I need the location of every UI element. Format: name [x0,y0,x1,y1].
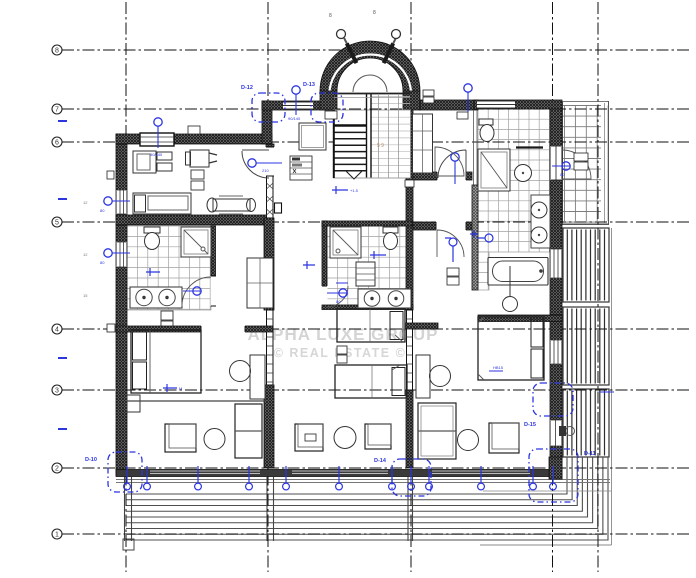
svg-text:8: 8 [329,13,332,19]
svg-text:2: 2 [55,466,59,473]
svg-text:3: 3 [55,388,59,395]
svg-text:D-12: D-12 [241,85,253,91]
svg-text:6: 6 [55,140,59,147]
svg-text:210: 210 [262,168,269,173]
svg-text:15: 15 [83,293,88,298]
svg-text:D-14: D-14 [374,458,387,464]
svg-text:HB15: HB15 [493,365,504,370]
svg-text:D-15: D-15 [524,422,536,428]
svg-text:5 9: 5 9 [377,143,384,149]
svg-text:8: 8 [55,48,59,55]
svg-text:80: 80 [100,208,105,213]
svg-text:12: 12 [83,200,88,205]
svg-text:5: 5 [55,220,59,227]
svg-text:D-11: D-11 [584,451,596,457]
svg-text:80: 80 [560,172,565,177]
svg-text:D-13: D-13 [303,82,315,88]
svg-text:4: 4 [55,327,59,334]
svg-text:+1.5: +1.5 [350,188,359,193]
svg-text:80: 80 [336,299,341,304]
svg-text:D-10: D-10 [85,457,97,463]
svg-text:M: M [179,386,182,391]
svg-text:7: 7 [55,107,59,114]
svg-text:12: 12 [83,252,88,257]
svg-text:1: 1 [55,532,59,539]
svg-text:8: 8 [373,10,376,16]
svg-text:90/140: 90/140 [288,116,301,121]
svg-text:80: 80 [100,260,105,265]
svg-text:90/140: 90/140 [150,152,163,157]
